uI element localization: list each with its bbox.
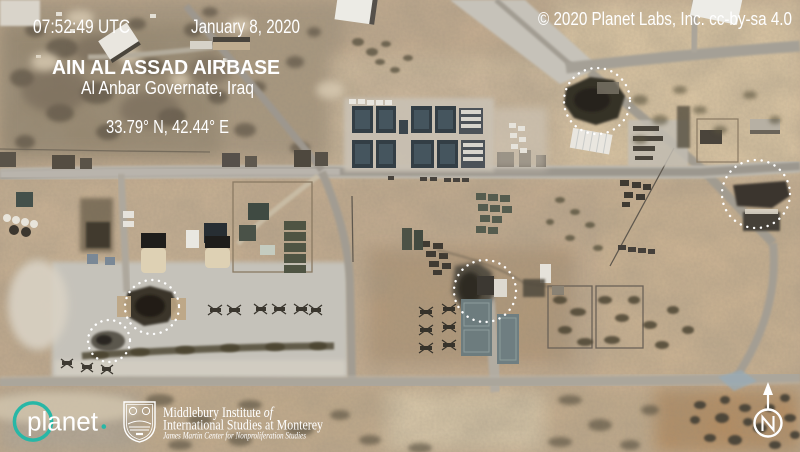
svg-text:James Martin Center for Nonpro: James Martin Center for Nonproliferation… — [163, 431, 306, 442]
svg-text:07:52:49 UTC: 07:52:49 UTC — [33, 17, 130, 38]
svg-text:planet: planet — [27, 407, 98, 437]
svg-text:AIN AL ASSAD AIRBASE: AIN AL ASSAD AIRBASE — [52, 56, 280, 79]
svg-text:33.79° N, 42.44° E: 33.79° N, 42.44° E — [106, 117, 229, 137]
svg-text:© 2020 Planet Labs, Inc. cc-by: © 2020 Planet Labs, Inc. cc-by-sa 4.0 — [538, 8, 792, 29]
svg-text:Al Anbar Governate, Iraq: Al Anbar Governate, Iraq — [81, 78, 254, 98]
svg-text:January 8, 2020: January 8, 2020 — [191, 17, 300, 38]
